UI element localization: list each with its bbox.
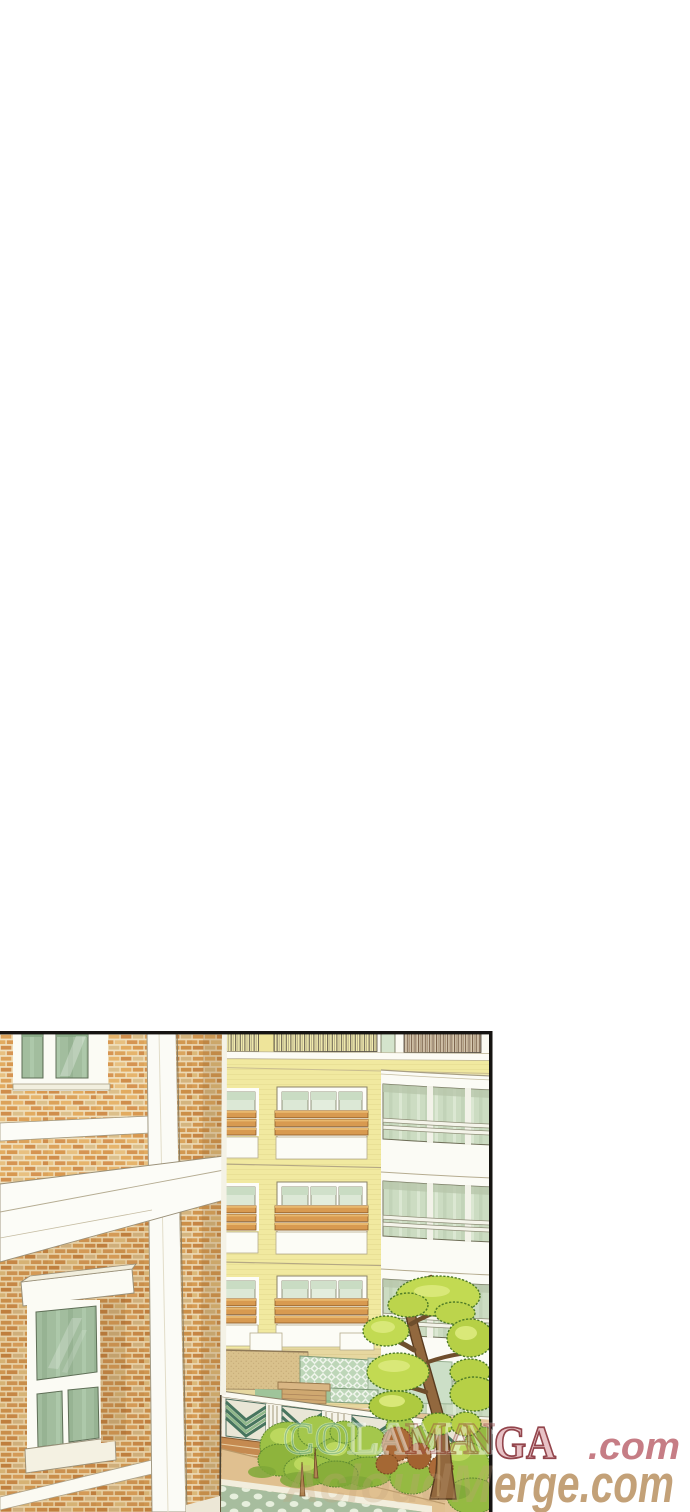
svg-text:erge.com: erge.com [494, 1455, 674, 1512]
svg-text:AcloudM: AcloudM [282, 1455, 494, 1512]
